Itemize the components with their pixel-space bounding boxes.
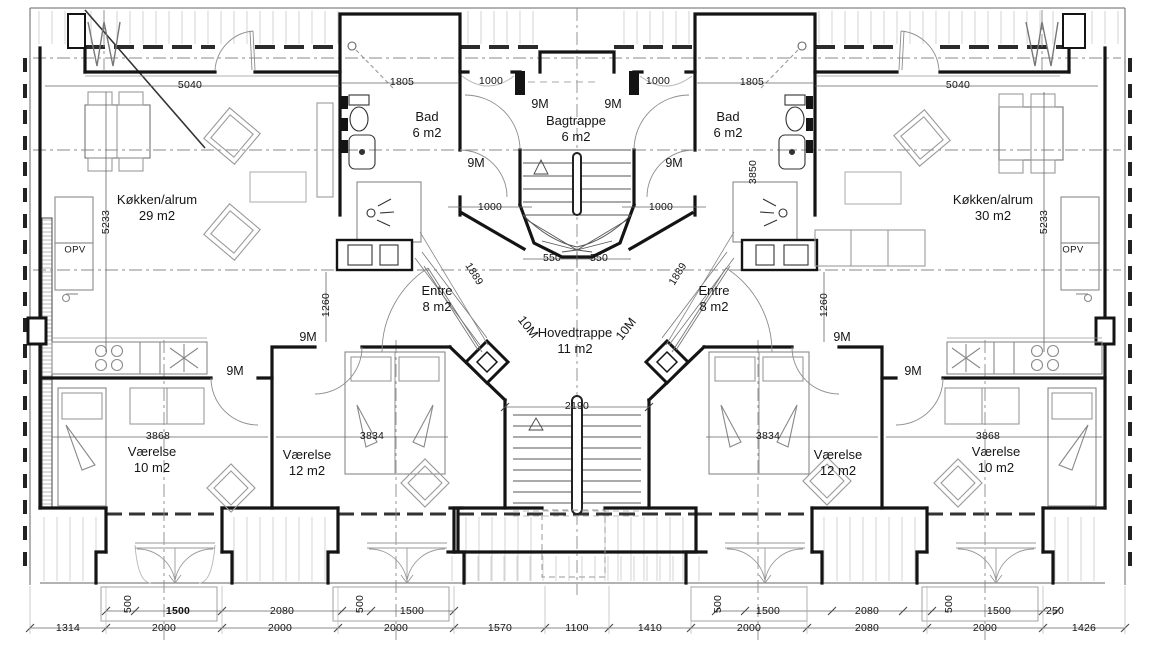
wall-blocks [28, 14, 1114, 344]
centerlines [33, 8, 1121, 640]
floorplan-canvas [0, 0, 1154, 648]
floorplan: Køkken/alrum29 m2Køkken/alrum30 m2Bad6 m… [0, 0, 1154, 648]
hovedtrappe-handrail [572, 396, 582, 514]
extension-lines [30, 586, 1125, 634]
dormer-windows [101, 543, 1038, 621]
bagtrappe-handrail [573, 153, 581, 215]
left-window-strip [42, 218, 52, 508]
roof-windows [88, 22, 1058, 66]
balcony-dashed [542, 510, 605, 577]
